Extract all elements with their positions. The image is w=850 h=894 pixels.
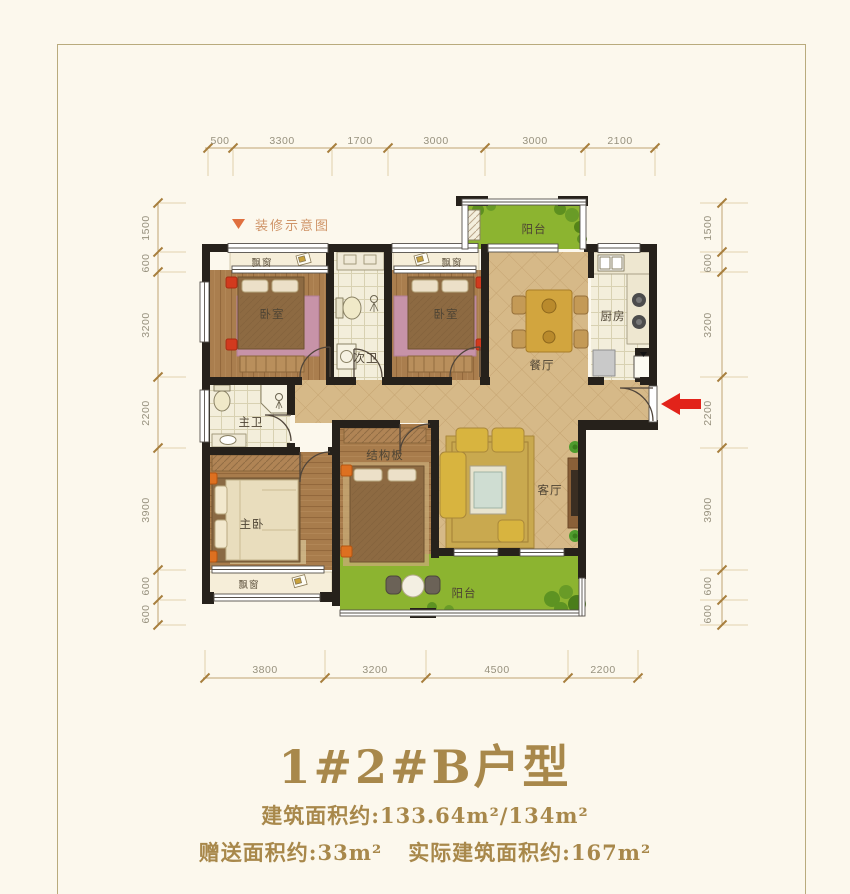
dim-right-5: 600	[702, 576, 714, 595]
dim-left-0: 1500	[140, 215, 152, 240]
dim-left-5: 600	[140, 576, 152, 595]
dim-right-0: 1500	[702, 215, 714, 240]
dim-top-4: 3000	[522, 135, 547, 147]
dim-right-3: 2200	[702, 400, 714, 425]
built-area-text: 建筑面积约:133.64m²/134m²	[261, 803, 588, 828]
label-bedroom-tl: 卧室	[260, 307, 285, 321]
dim-right-2: 3200	[702, 312, 714, 337]
gift-area-text: 赠送面积约:33m²	[199, 840, 382, 865]
dim-bottom-0: 3800	[252, 664, 277, 676]
entry-arrow-icon	[661, 393, 701, 415]
entry-floor	[588, 380, 651, 422]
dim-right-1: 600	[702, 253, 714, 272]
bedroom-master-furniture	[206, 455, 306, 564]
dim-top-2: 1700	[347, 135, 372, 147]
dim-left-2: 3200	[140, 312, 152, 337]
label-bedroom-master: 主卧	[240, 518, 265, 531]
dim-right-6: 600	[702, 604, 714, 623]
label-balcony-top: 阳台	[522, 222, 547, 236]
label-kitchen: 厨房	[601, 310, 626, 323]
corridor-floor	[295, 380, 588, 423]
plan-title: 1#2#B户型	[0, 742, 850, 793]
label-bath-master: 主卫	[239, 416, 264, 429]
label-balcony-bottom: 阳台	[452, 586, 477, 600]
dim-left-6: 600	[140, 604, 152, 623]
label-bay-tr: 飘窗	[441, 257, 462, 269]
dim-top-1: 3300	[269, 135, 294, 147]
dim-left-4: 3900	[140, 497, 152, 522]
dim-bottom-1: 3200	[362, 664, 387, 676]
actual-area-text: 实际建筑面积约:167m²	[408, 840, 651, 865]
floorplan-page: 500 3300 1700 3000 3000 2100 3800 3200 4…	[0, 0, 850, 894]
dim-right-4: 3900	[702, 497, 714, 522]
dimension-labels-left: 1500 600 3200 2200 3900 600 600	[140, 215, 152, 623]
legend-label: 装修示意图	[255, 218, 330, 233]
legend-triangle-icon	[232, 219, 245, 229]
label-dining: 餐厅	[530, 358, 555, 372]
dim-top-0: 500	[210, 135, 229, 147]
bay-window-master-floor	[208, 572, 332, 597]
dimension-labels-bottom: 3800 3200 4500 2200	[252, 664, 615, 676]
dim-top-3: 3000	[423, 135, 448, 147]
dim-left-1: 600	[140, 253, 152, 272]
dim-left-3: 2200	[140, 400, 152, 425]
label-bedroom-tr: 卧室	[434, 307, 459, 321]
legend: 装修示意图	[232, 218, 330, 233]
dim-top-5: 2100	[607, 135, 632, 147]
label-bath-second: 次卫	[354, 351, 379, 365]
title-block: 1#2#B户型 建筑面积约:133.64m²/134m² 赠送面积约:33m²实…	[0, 742, 850, 867]
dim-bottom-3: 2200	[590, 664, 615, 676]
label-living: 客厅	[538, 483, 563, 497]
dimension-labels-top: 500 3300 1700 3000 3000 2100	[210, 135, 632, 147]
label-bay-master: 飘窗	[238, 579, 259, 591]
dim-bottom-2: 4500	[484, 664, 509, 676]
area-line-1: 建筑面积约:133.64m²/134m²	[0, 800, 850, 830]
dimension-labels-right: 1500 600 3200 2200 3900 600 600	[702, 215, 714, 623]
area-line-2: 赠送面积约:33m²实际建筑面积约:167m²	[0, 837, 850, 867]
label-bay-tl: 飘窗	[251, 257, 272, 269]
label-structure: 结构板	[366, 448, 404, 462]
